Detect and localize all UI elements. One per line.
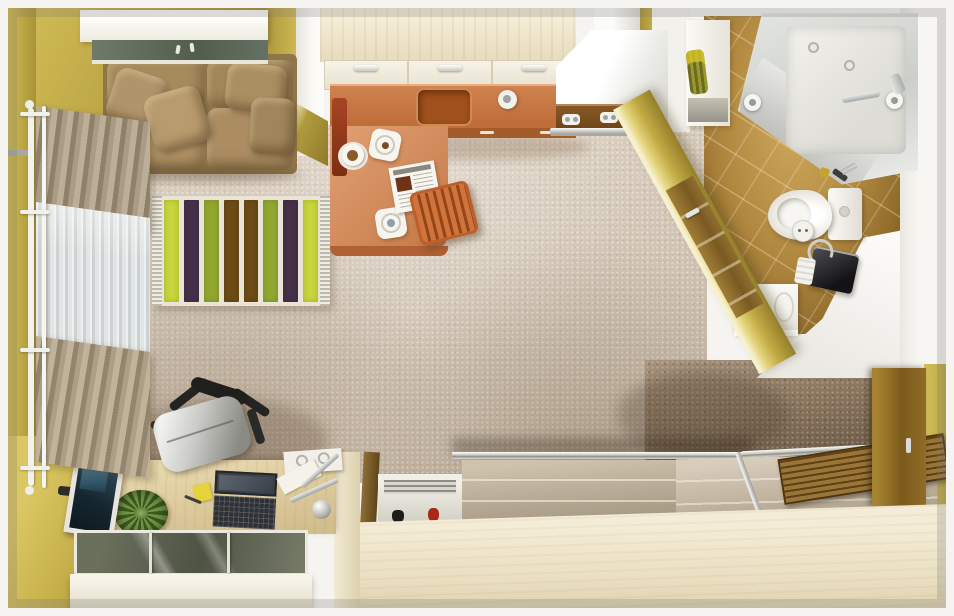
throw-pillow (249, 97, 296, 155)
upper-cabinets-top (320, 8, 576, 62)
entry-door (872, 368, 926, 506)
food-item (381, 141, 389, 149)
rug-stripe (263, 200, 278, 302)
curtain-rod-crossbar (20, 466, 50, 470)
bathroom-shelf-item (688, 98, 728, 122)
shoe-rack-vents (384, 480, 456, 494)
red-shoe (428, 508, 439, 522)
wardrobe-side-panel (360, 452, 380, 525)
sideboard-divider (149, 533, 152, 573)
bathroom-door-handle (685, 207, 701, 219)
striped-rug (152, 196, 330, 306)
curtain-rod (28, 108, 34, 486)
cabinet-handle (438, 65, 462, 71)
kitchen-faucet (498, 90, 517, 109)
laptop (213, 470, 278, 529)
apartment-floor-plan (0, 0, 954, 616)
rug-stripe (184, 200, 199, 302)
wall-shelf (80, 10, 268, 42)
coffee-cup (342, 144, 364, 166)
floor-flush-plate (792, 220, 814, 242)
kitchen-sink (416, 88, 472, 126)
rug-stripe (224, 200, 239, 302)
glass-sideboard-top (74, 530, 308, 576)
curtain-rod-finial (25, 100, 34, 109)
laptop-screen (214, 470, 277, 496)
rug-fringe (152, 196, 162, 306)
glass-sideboard-front (70, 574, 312, 612)
shower-hinge (744, 94, 761, 111)
desk-lamp (312, 500, 331, 519)
rug-stripe (283, 200, 298, 302)
shower-drain (844, 60, 855, 71)
rug-fringe (320, 196, 330, 306)
rug-stripes (164, 200, 318, 302)
rug-stripe (164, 200, 179, 302)
curtain-rod-crossbar (20, 112, 50, 116)
cabinet-handle (354, 65, 378, 71)
curtain-rod (42, 106, 46, 488)
shower-hinge (886, 92, 903, 109)
toilet-flush-button (839, 206, 850, 217)
curtain-rod-finial (25, 486, 34, 495)
curtain-drape-bottom (36, 336, 150, 478)
sink-bowl (774, 292, 794, 322)
curtain-rod-crossbar (20, 348, 50, 352)
rug-stripe (303, 200, 318, 302)
entry-door-handle (906, 438, 911, 453)
breakfast-table-edge (330, 246, 448, 256)
rug-stripe (244, 200, 259, 302)
rug-stripe (204, 200, 219, 302)
cabinet-handle (522, 65, 546, 71)
curtain-rod-crossbar (20, 210, 50, 214)
wall-shelf-lip (92, 60, 268, 64)
wall-shelf-glass-front (92, 40, 268, 62)
burner (562, 114, 580, 125)
curtain-rod-bracket (8, 150, 28, 156)
newspaper-photo (395, 176, 412, 192)
drawer-handle (480, 131, 494, 134)
shower-drain (808, 42, 819, 53)
desk-side-panel (334, 452, 360, 616)
shower-tray (786, 26, 906, 154)
food-item (386, 218, 395, 227)
laptop-keyboard (213, 495, 277, 529)
sideboard-divider (227, 533, 230, 573)
